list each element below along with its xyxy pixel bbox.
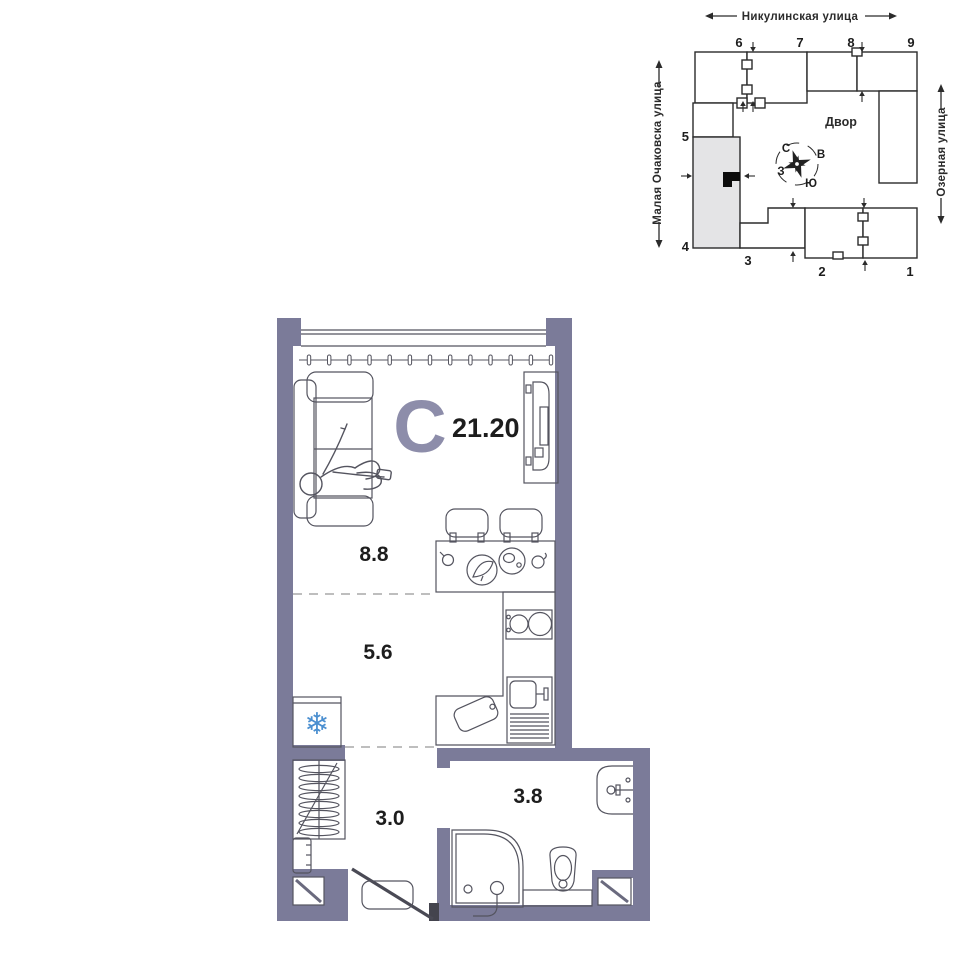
building-8-label: 8 [847, 35, 854, 50]
shower [452, 830, 523, 916]
compass-icon: С В Ю З [776, 143, 825, 190]
window-band [301, 330, 546, 346]
apartment-type-letter: С [393, 385, 446, 468]
site-buildings [693, 48, 917, 259]
building-1-label: 1 [906, 264, 913, 279]
entrance-door [352, 869, 433, 919]
compass-west-label: З [777, 166, 784, 178]
building-4-label: 4 [682, 239, 690, 254]
total-area-label: 21.20 [452, 413, 520, 443]
toilet [523, 847, 592, 906]
street-top-label: Никулинская улица [742, 11, 859, 23]
sofa [294, 372, 373, 526]
highlighted-building-4 [693, 137, 740, 248]
stove [506, 610, 552, 639]
compass-north-label: С [782, 143, 790, 155]
building-7-label: 7 [796, 35, 803, 50]
building-5-label: 5 [682, 129, 689, 144]
kitchen-sink [507, 677, 552, 743]
tv-unit [524, 372, 558, 483]
bathroom-area-label: 3.8 [513, 785, 543, 808]
bathroom-sink [597, 766, 633, 814]
compass-east-label: В [817, 149, 825, 161]
hall-area-label: 3.0 [375, 807, 404, 830]
apartment-floor-plan: ❄ [240, 300, 680, 940]
cutting-board [452, 694, 500, 733]
living-area-label: 8.8 [359, 543, 389, 566]
building-6-label: 6 [735, 35, 742, 50]
street-right-label: Озерная улица [936, 107, 948, 197]
curtain-rail [299, 355, 553, 365]
building-2-label: 2 [818, 264, 825, 279]
site-plan: Никулинская улица Малая Очаковска улица … [640, 0, 960, 290]
dining-table [436, 509, 555, 592]
street-left-label: Малая Очаковска улица [652, 81, 664, 225]
fridge: ❄ [293, 697, 341, 747]
floorplan-page: Никулинская улица Малая Очаковска улица … [0, 0, 960, 960]
building-3-label: 3 [744, 253, 751, 268]
courtyard-label: Двор [825, 115, 857, 129]
wardrobe [293, 760, 345, 839]
compass-south-label: Ю [805, 178, 817, 190]
building-9-label: 9 [907, 35, 914, 50]
snowflake-icon: ❄ [304, 708, 329, 741]
hall-shelf [293, 838, 311, 873]
kitchen-area-label: 5.6 [363, 641, 392, 664]
plan-labels: С 21.20 8.8 5.6 3.0 3.8 [359, 385, 543, 830]
